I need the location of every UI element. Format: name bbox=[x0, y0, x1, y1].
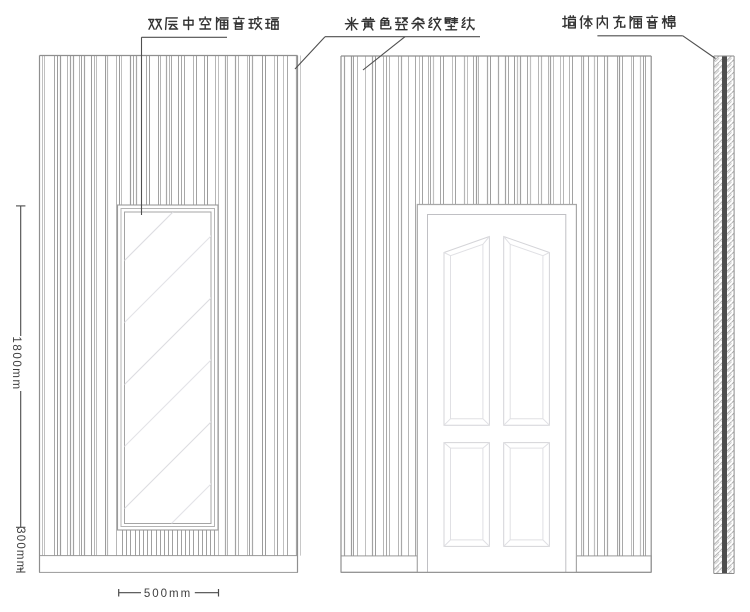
svg-text:500mm: 500mm bbox=[144, 588, 192, 600]
svg-text:1800mm: 1800mm bbox=[10, 336, 22, 390]
svg-text:300mm: 300mm bbox=[14, 527, 26, 571]
